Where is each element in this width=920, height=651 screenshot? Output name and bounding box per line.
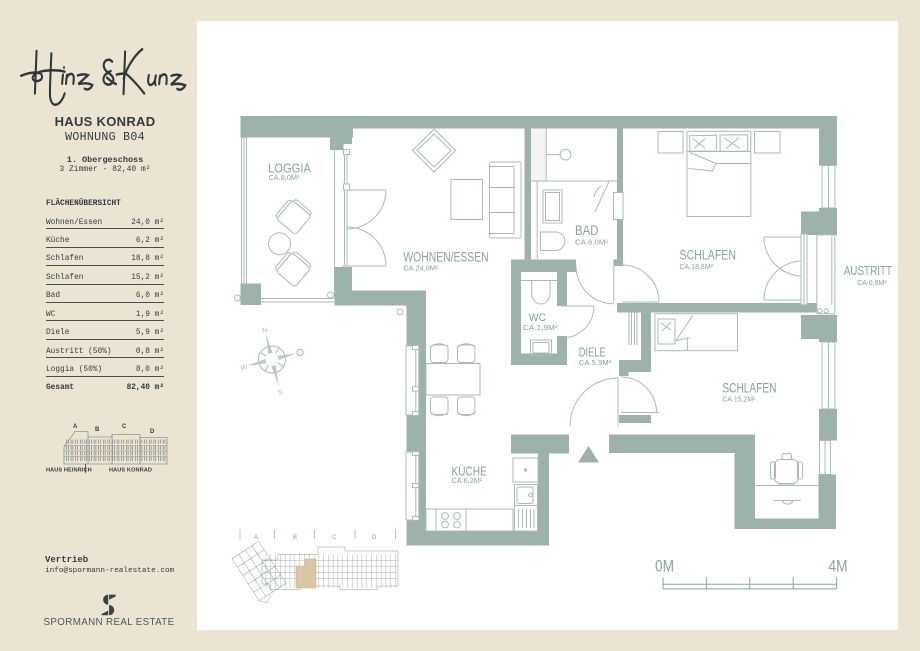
svg-text:N: N [262,327,269,335]
svg-text:AUSTRITT: AUSTRITT [844,263,892,278]
svg-text:S: S [277,389,284,397]
svg-text:CA.6,0M²: CA.6,0M² [575,238,609,247]
svg-text:CA.5,9M²: CA.5,9M² [579,358,612,367]
svg-text:CA.8,0M²: CA.8,0M² [269,173,300,182]
svg-text:B: B [95,427,100,433]
svg-text:CA.6,2M²: CA.6,2M² [452,476,483,485]
svg-text:CA.18,8M²: CA.18,8M² [680,262,714,271]
svg-text:SCHLAFEN: SCHLAFEN [680,248,737,263]
svg-text:A: A [73,424,78,430]
svg-text:SCHLAFEN: SCHLAFEN [722,381,776,396]
svg-text:CA.1,9M²: CA.1,9M² [523,323,558,332]
svg-text:C: C [332,535,337,541]
svg-text:D: D [372,535,377,541]
svg-text:HAUS HEINRICH: HAUS HEINRICH [46,468,92,474]
svg-text:B: B [293,535,297,541]
svg-text:A: A [254,535,258,541]
svg-text:0M: 0M [655,557,674,576]
svg-text:C: C [122,424,127,430]
svg-text:BAD: BAD [575,223,599,238]
svg-text:HAUS KONRAD: HAUS KONRAD [109,468,152,474]
svg-text:WOHNEN/ESSEN: WOHNEN/ESSEN [403,250,488,265]
svg-text:W: W [240,364,248,372]
svg-text:CA.0,8M²: CA.0,8M² [857,278,887,287]
svg-text:CA.15,2M²: CA.15,2M² [722,395,755,404]
svg-text:CA.24,0M²: CA.24,0M² [403,264,438,273]
svg-text:4M: 4M [829,557,848,576]
svg-text:D: D [150,429,155,435]
